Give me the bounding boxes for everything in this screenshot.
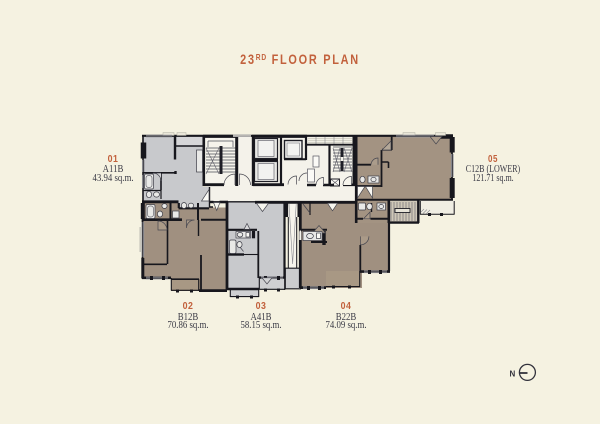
svg-text:N: N: [510, 370, 516, 379]
